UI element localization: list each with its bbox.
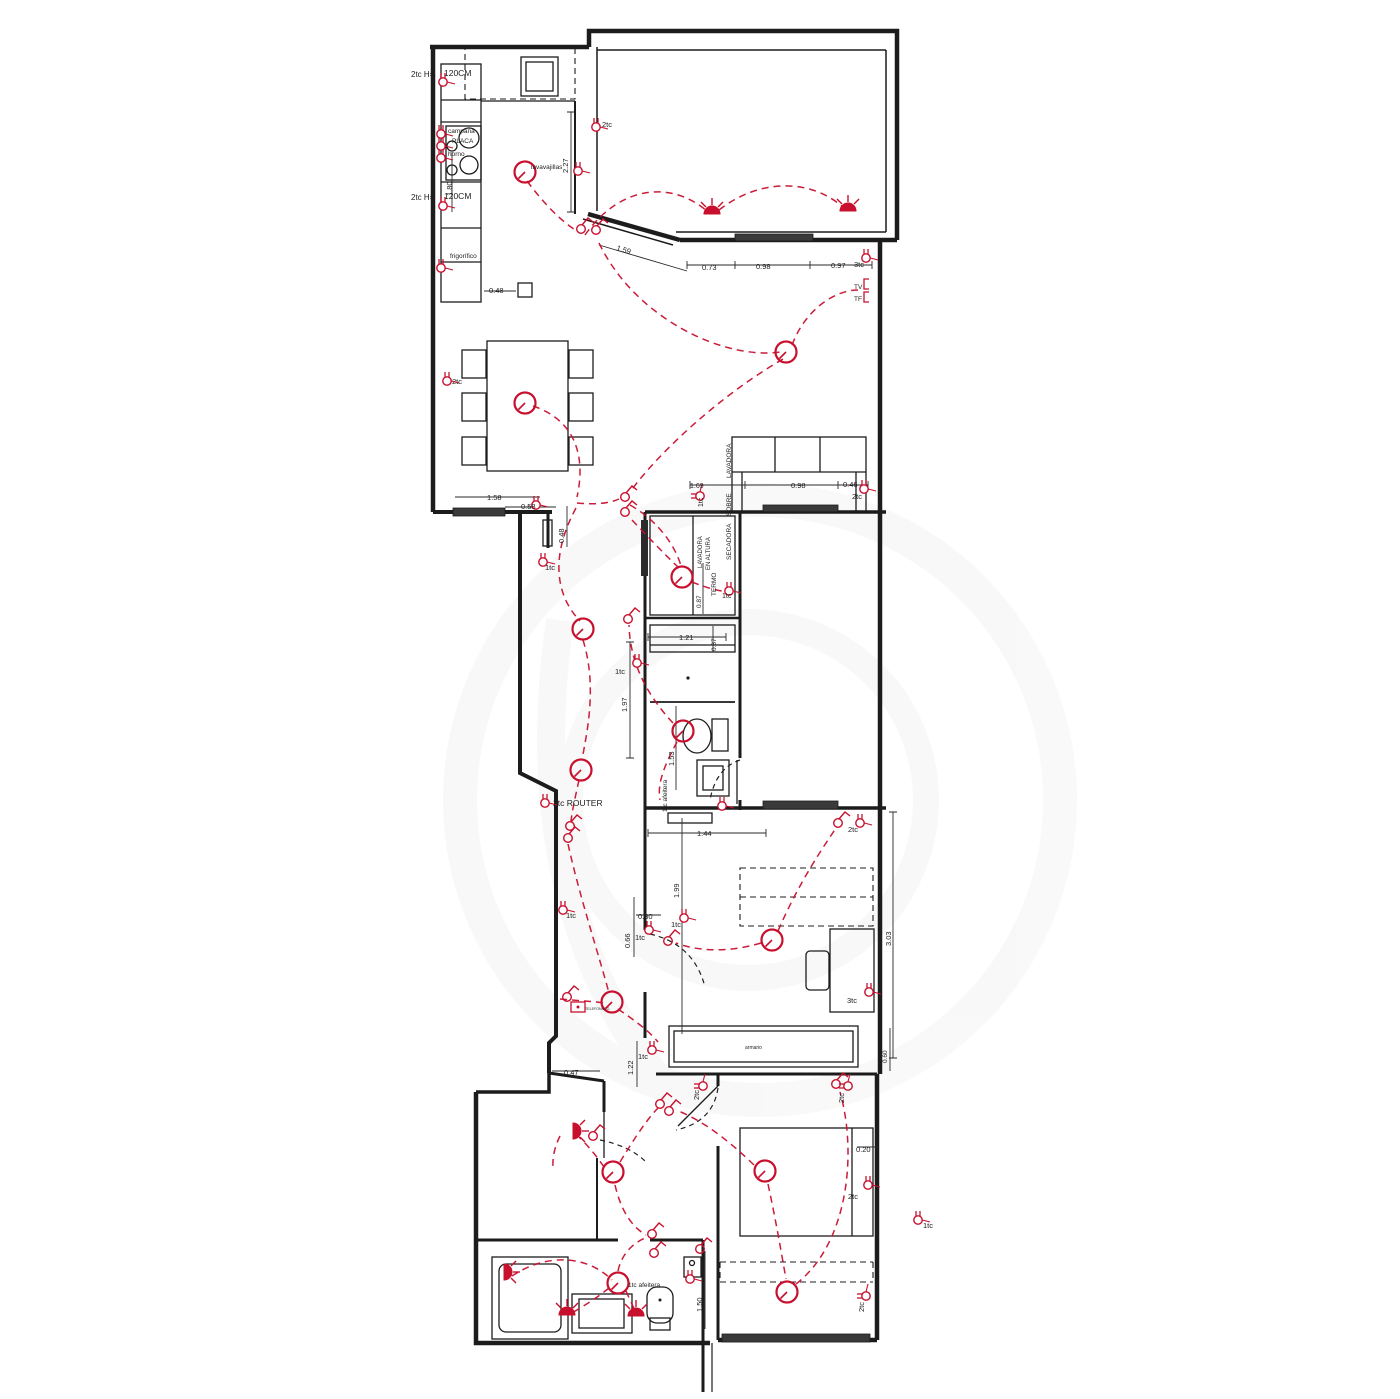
dim-048-kitchen: 0.48 [489, 286, 504, 295]
fridge-label: frigorífico [450, 253, 477, 260]
chair [569, 393, 593, 421]
dim-030: 0.30 [638, 912, 653, 921]
tv-tf-point-symbol [864, 292, 869, 302]
socket-2tc-terrace: 2tc [602, 120, 612, 129]
laundry-note-1c: SECADORA [726, 523, 733, 560]
wall-light-symbol [625, 1300, 647, 1316]
socket-2tc-bed2-d: 2tc [857, 1302, 866, 1312]
socket-note-top: 2tc H= [411, 70, 435, 79]
chair [569, 437, 593, 465]
socket-2tc-bed2-b: 2tc [837, 1093, 846, 1103]
power-socket-symbol [574, 162, 590, 175]
power-socket-symbol [856, 814, 872, 827]
sliding-wardrobe [720, 1262, 873, 1282]
power-socket-symbol [862, 249, 878, 262]
dim-197: 1.97 [620, 697, 629, 712]
tf-point: TF [854, 296, 862, 303]
ceiling-light-symbol [515, 393, 536, 414]
socket-1tc-hall2: 1tc [638, 1052, 648, 1061]
power-socket-symbol [437, 259, 453, 272]
socket-3tc-living: 3tc [854, 260, 864, 269]
socket-1tc-hall-top: 1tc [545, 563, 555, 572]
light-switch-symbol [589, 1125, 605, 1140]
ceiling-light-symbol [755, 1161, 776, 1182]
hob-label: PLACA [452, 138, 474, 145]
small-cabinet [518, 283, 532, 297]
shaver-socket-bath2: 1tc afeitera [628, 1282, 661, 1289]
socket-2tc-bed2-a: 2tc [692, 1090, 701, 1100]
socket-2tc-sofa: 2tc [852, 492, 862, 501]
dim-087: 0.87 [696, 595, 703, 608]
bed [740, 1128, 873, 1236]
dim-122: 1.22 [626, 1060, 635, 1075]
power-socket-symbol [437, 137, 453, 150]
dining-table [487, 341, 568, 471]
tv-point: TV [854, 284, 863, 291]
router-note: 2tc ROUTER [553, 798, 603, 808]
dim-121: 1.21 [679, 633, 694, 642]
dim-020: 0.20 [856, 1145, 871, 1154]
ceiling-light-symbol [762, 930, 783, 951]
dim-199: 1.99 [672, 883, 681, 898]
dim-158: 1.58 [487, 493, 502, 502]
intercom-label: TELEFONILLO [585, 1007, 610, 1011]
terrace-window [735, 234, 813, 241]
dim-150: 1.50 [695, 1297, 704, 1312]
dim-227: 2.27 [561, 158, 570, 173]
socket-1tc-bed1-b: 1tc [635, 933, 645, 942]
dim-058: 0.58 [521, 502, 536, 511]
shelf [668, 813, 712, 823]
oven-label: horno [448, 151, 465, 158]
ceiling-light-symbol [573, 619, 594, 640]
floorplan-canvas: 2tc H=120CMcampanaPLACAhorno1.802tc H=12… [0, 0, 1400, 1399]
laundry-note-1b: SOBRE [726, 493, 733, 516]
light-switch-symbol [648, 1223, 664, 1238]
light-switch-symbol [592, 219, 608, 234]
wardrobe [669, 1026, 858, 1067]
counter-height-top: 120CM [444, 68, 471, 78]
ceiling-light-symbol [672, 567, 693, 588]
shower-tray [492, 1257, 568, 1339]
chair [462, 437, 486, 465]
socket-1tc-ext: 1tc [923, 1221, 933, 1230]
bathroom1-fixtures [650, 625, 737, 804]
dim-098-sofa: 0.98 [791, 481, 806, 490]
dining-window [453, 508, 505, 516]
ceiling-light-symbol [777, 1282, 798, 1303]
dim-066: 0.66 [623, 933, 632, 948]
terrace-walls [583, 47, 886, 245]
power-socket-symbol [680, 909, 696, 922]
light-switch-symbol [624, 608, 640, 623]
dim-097: 0.97 [831, 261, 846, 270]
chair [462, 350, 486, 378]
dim-037: 0.37 [711, 638, 718, 651]
dim-169: 1.69 [690, 483, 704, 490]
hood-label: campana [448, 128, 475, 135]
socket-1tc-termo: 1tc [722, 593, 732, 600]
light-switch-symbol [621, 486, 637, 501]
dim-153: 1.53 [667, 751, 676, 766]
dim-303: 3.03 [884, 931, 893, 946]
laundry-note-2a: LAVADORA [698, 536, 704, 568]
socket-1tc-bed1-a: 1tc [671, 920, 681, 929]
bedroom2-window [722, 1334, 870, 1342]
chair [462, 393, 486, 421]
watermark-logo [460, 500, 1060, 1100]
power-socket-symbol [648, 1041, 664, 1054]
socket-1tc-bath1: 1tc [615, 667, 625, 676]
floorplan-svg: 2tc H=120CMcampanaPLACAhorno1.802tc H=12… [0, 0, 1400, 1399]
bedroom2-furniture [720, 1128, 873, 1282]
power-socket-symbol [645, 921, 661, 934]
tv-tf-point-symbol [864, 279, 869, 289]
socket-3tc-desk: 3tc [847, 996, 857, 1005]
dishwasher-label: lavavajillas [531, 164, 563, 171]
boiler-note: TERMO [711, 573, 718, 596]
sliding-door [641, 520, 648, 576]
wall-light-symbol [701, 198, 723, 214]
laundry-note-1a: LAVADORA [726, 443, 733, 478]
socket-2tc-bed2-c: 2tc [848, 1192, 858, 1201]
shaver-socket-bath1: 1tc afeitera [662, 779, 669, 812]
dim-046: 0.46 [843, 480, 858, 489]
dim-048-v: 0.48 [557, 528, 566, 543]
wardrobe-label: armario [745, 1045, 762, 1051]
ceiling-light-symbol [603, 1162, 624, 1183]
counter-height-mid: 120CM [444, 191, 471, 201]
radiator-band [763, 801, 838, 809]
power-socket-symbol [857, 1284, 870, 1300]
laundry-note-2b: EN ALTURA [706, 537, 712, 570]
socket-1tc-corridor: 1tc [566, 911, 576, 920]
socket-note-mid: 2tc H= [411, 193, 435, 202]
door-swing [600, 1140, 646, 1162]
dim-060: 0.60 [882, 1050, 889, 1063]
wall-light-symbol [573, 1120, 589, 1142]
wall-light-symbol [556, 1299, 578, 1315]
socket-1tc-laundry: 1tc [698, 497, 705, 507]
dim-047: 0.47 [564, 1068, 579, 1077]
light-switch-symbol [650, 1242, 666, 1257]
vanity [572, 1294, 632, 1333]
ceiling-light-symbol [608, 1273, 629, 1294]
wall-light-symbol [837, 195, 859, 211]
intercom-symbol [571, 1002, 585, 1012]
chair [569, 350, 593, 378]
toilet [683, 719, 711, 753]
dim-073: 0.73 [702, 263, 717, 272]
socket-2tc-bed1: 2tc [848, 825, 858, 834]
dim-144: 1.44 [697, 829, 712, 838]
socket-2tc-dining: 2tc [452, 377, 462, 386]
dim-159: 1.59 [615, 243, 632, 256]
dim-098-top: 0.98 [756, 262, 771, 271]
dining-furniture [462, 341, 593, 471]
